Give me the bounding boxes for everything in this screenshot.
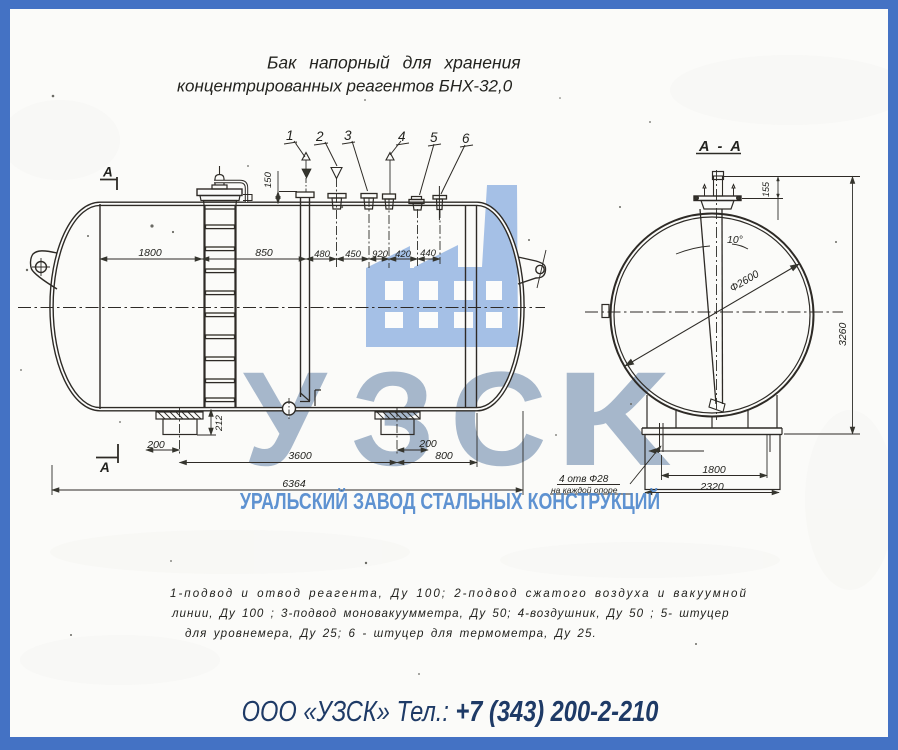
svg-text:2: 2 <box>315 129 324 144</box>
svg-text:200: 200 <box>146 439 165 451</box>
svg-text:ООО «УЗСК» Тел.: +7 (343) 200-: ООО «УЗСК» Тел.: +7 (343) 200-2-210 <box>242 695 659 728</box>
svg-text:А: А <box>99 460 110 475</box>
svg-text:150: 150 <box>263 171 274 188</box>
svg-text:3260: 3260 <box>837 322 849 346</box>
svg-text:Бак напорный для хранения: Бак напорный для хранения <box>267 53 521 73</box>
svg-text:1800: 1800 <box>702 464 726 476</box>
svg-text:3600: 3600 <box>288 450 312 462</box>
svg-text:К: К <box>554 344 671 494</box>
svg-text:4: 4 <box>398 129 406 144</box>
svg-text:УРАЛЬСКИЙ ЗАВОД СТАЛЬНЫХ КОНСТ: УРАЛЬСКИЙ ЗАВОД СТАЛЬНЫХ КОНСТРУКЦИЙ <box>240 488 660 515</box>
svg-text:А - А: А - А <box>698 139 743 155</box>
svg-text:440: 440 <box>420 248 437 259</box>
svg-text:10°: 10° <box>727 234 743 246</box>
svg-text:480: 480 <box>314 249 331 260</box>
svg-text:4 отв Ф28: 4 отв Ф28 <box>559 474 609 485</box>
svg-text:А: А <box>102 165 113 180</box>
svg-text:концентрированных реагентов БН: концентрированных реагентов БНХ-32,0 <box>177 77 513 96</box>
svg-text:У: У <box>243 345 328 494</box>
svg-text:6: 6 <box>462 131 470 146</box>
svg-text:450: 450 <box>345 249 362 260</box>
svg-text:3: 3 <box>344 128 352 143</box>
svg-text:С: С <box>450 345 547 494</box>
svg-text:1-подвод и отвод реагента, Ду: 1-подвод и отвод реагента, Ду 100; 2-под… <box>170 587 748 600</box>
svg-text:212: 212 <box>214 414 225 432</box>
svg-text:1800: 1800 <box>138 247 162 259</box>
svg-text:850: 850 <box>255 247 273 259</box>
svg-text:420: 420 <box>395 249 412 260</box>
svg-text:800: 800 <box>435 450 453 462</box>
svg-text:155: 155 <box>761 181 771 197</box>
svg-text:920: 920 <box>372 249 389 260</box>
svg-text:5: 5 <box>430 130 438 145</box>
svg-text:2320: 2320 <box>699 481 724 493</box>
svg-text:линии, Ду 100 ; 3-подвод моно: линии, Ду 100 ; 3-подвод моновакуумметра… <box>171 607 730 620</box>
svg-text:для уровнемера, Ду 25; 6 - шту: для уровнемера, Ду 25; 6 - штуцер для те… <box>185 627 597 640</box>
svg-text:1: 1 <box>286 128 294 143</box>
svg-text:200: 200 <box>418 438 437 450</box>
